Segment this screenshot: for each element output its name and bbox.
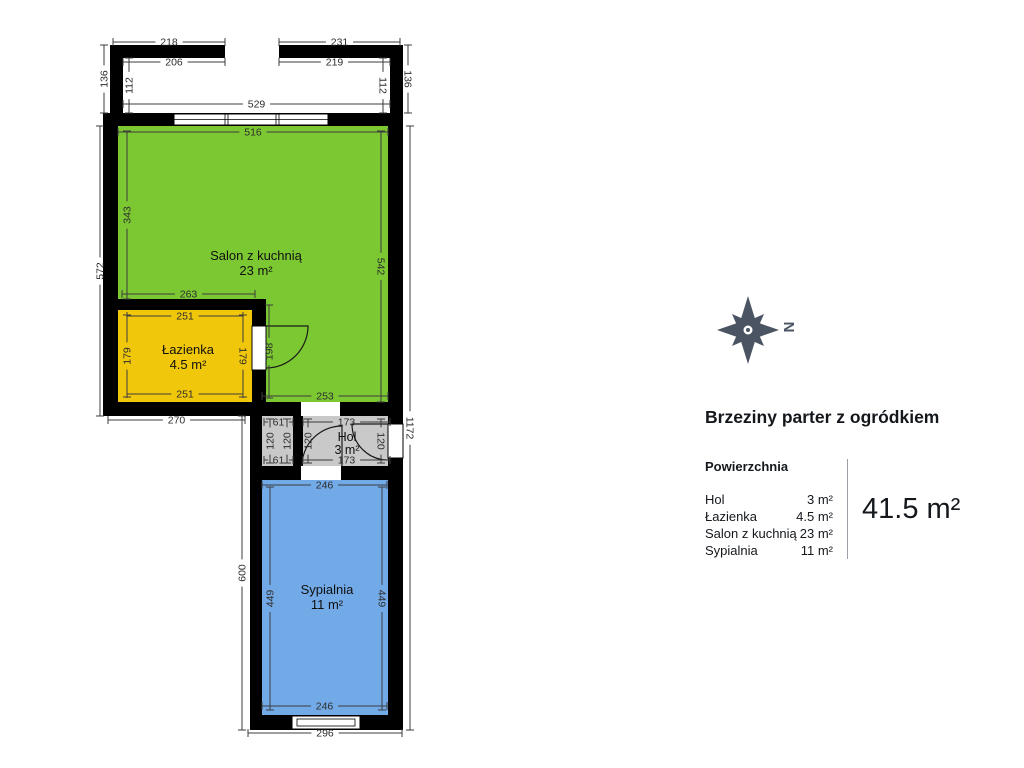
svg-text:206: 206 [165, 57, 183, 69]
left-outer-wall-lower [250, 402, 262, 730]
total-area: 41.5 m² [848, 493, 960, 526]
room-area: 23 m² [800, 525, 833, 542]
room-name: Sypialnia [705, 542, 758, 559]
hall-bedroom-opening [301, 466, 341, 480]
right-outer-wall-upper [388, 113, 403, 416]
hall-area: 3 m² [335, 443, 360, 457]
room-area: 11 m² [801, 542, 833, 559]
svg-text:61: 61 [273, 417, 285, 429]
legend-row: Hol 3 m² [705, 491, 833, 508]
page: 218 231 206 219 136 112 112 136 529 516 … [0, 0, 1024, 768]
dimension: 136 [402, 45, 414, 113]
dimension: 1172 [404, 126, 416, 730]
svg-text:120: 120 [282, 432, 294, 450]
dimension: 206 [123, 57, 225, 69]
bathroom-label: Łazienka [162, 342, 215, 357]
svg-text:572: 572 [95, 262, 107, 280]
svg-text:136: 136 [99, 70, 111, 88]
svg-text:449: 449 [265, 590, 277, 608]
svg-text:251: 251 [176, 311, 194, 323]
svg-text:120: 120 [375, 432, 387, 450]
svg-text:136: 136 [402, 70, 414, 88]
room-area: 4.5 m² [796, 508, 833, 525]
room-name: Łazienka [705, 508, 757, 525]
svg-text:263: 263 [180, 289, 198, 301]
terrace-right-wall [390, 45, 403, 116]
svg-text:253: 253 [316, 391, 334, 403]
dimension: 136 [99, 45, 111, 113]
hall-partition-wall [293, 416, 303, 466]
svg-text:120: 120 [303, 432, 315, 450]
svg-text:529: 529 [248, 99, 266, 111]
svg-text:1172: 1172 [404, 417, 416, 440]
bedroom-label: Sypialnia [301, 582, 355, 597]
salon-label: Salon z kuchnią [210, 248, 303, 263]
area-legend: Powierzchnia Hol 3 m² Łazienka 4.5 m² Sa… [705, 459, 975, 559]
compass-rose: N [717, 296, 797, 364]
dimension: 219 [279, 57, 390, 69]
svg-text:516: 516 [244, 127, 262, 139]
hall-label: Hol [338, 430, 357, 444]
svg-text:246: 246 [316, 701, 334, 713]
dimension: 112 [124, 58, 136, 113]
svg-text:198: 198 [264, 343, 276, 361]
svg-text:179: 179 [122, 347, 134, 365]
dimension: 270 [108, 415, 245, 427]
svg-text:218: 218 [160, 37, 178, 49]
room-area: 3 m² [807, 491, 833, 508]
svg-text:343: 343 [122, 206, 134, 224]
svg-text:112: 112 [124, 77, 136, 94]
svg-text:251: 251 [176, 389, 194, 401]
dimension: 529 [123, 99, 390, 111]
svg-text:173: 173 [338, 417, 356, 429]
room-name: Hol [705, 491, 725, 508]
bedroom-area: 11 m² [311, 597, 344, 612]
legend-heading: Powierzchnia [705, 459, 833, 474]
svg-text:61: 61 [273, 455, 285, 467]
svg-text:246: 246 [316, 480, 334, 492]
dimension: 112 [377, 58, 389, 113]
dimension: 600 [237, 416, 249, 730]
salon-hall-opening [301, 402, 340, 416]
compass-hub-dot [746, 328, 750, 332]
floor-plan: 218 231 206 219 136 112 112 136 529 516 … [0, 0, 1024, 768]
salon-area: 23 m² [239, 263, 273, 278]
info-panel: Brzeziny parter z ogródkiem Powierzchnia… [705, 407, 975, 559]
svg-text:296: 296 [316, 728, 334, 740]
north-label: N [780, 322, 797, 333]
legend-row: Łazienka 4.5 m² [705, 508, 833, 525]
svg-text:179: 179 [237, 347, 249, 365]
svg-text:231: 231 [331, 37, 349, 49]
legend-row: Sypialnia 11 m² [705, 542, 833, 559]
page-title: Brzeziny parter z ogródkiem [705, 407, 975, 428]
svg-text:542: 542 [375, 258, 387, 276]
legend-row: Salon z kuchnią 23 m² [705, 525, 833, 542]
bathroom-top-wall [103, 299, 266, 310]
svg-text:449: 449 [376, 590, 388, 608]
svg-text:219: 219 [326, 57, 344, 69]
room-name: Salon z kuchnią [705, 525, 797, 542]
svg-text:270: 270 [168, 415, 186, 427]
svg-text:600: 600 [237, 564, 249, 582]
svg-text:112: 112 [377, 77, 389, 94]
entrance-door-opening [388, 424, 403, 458]
bathroom-area: 4.5 m² [170, 357, 208, 372]
svg-text:120: 120 [265, 432, 277, 450]
legend-rows: Powierzchnia Hol 3 m² Łazienka 4.5 m² Sa… [705, 459, 833, 559]
